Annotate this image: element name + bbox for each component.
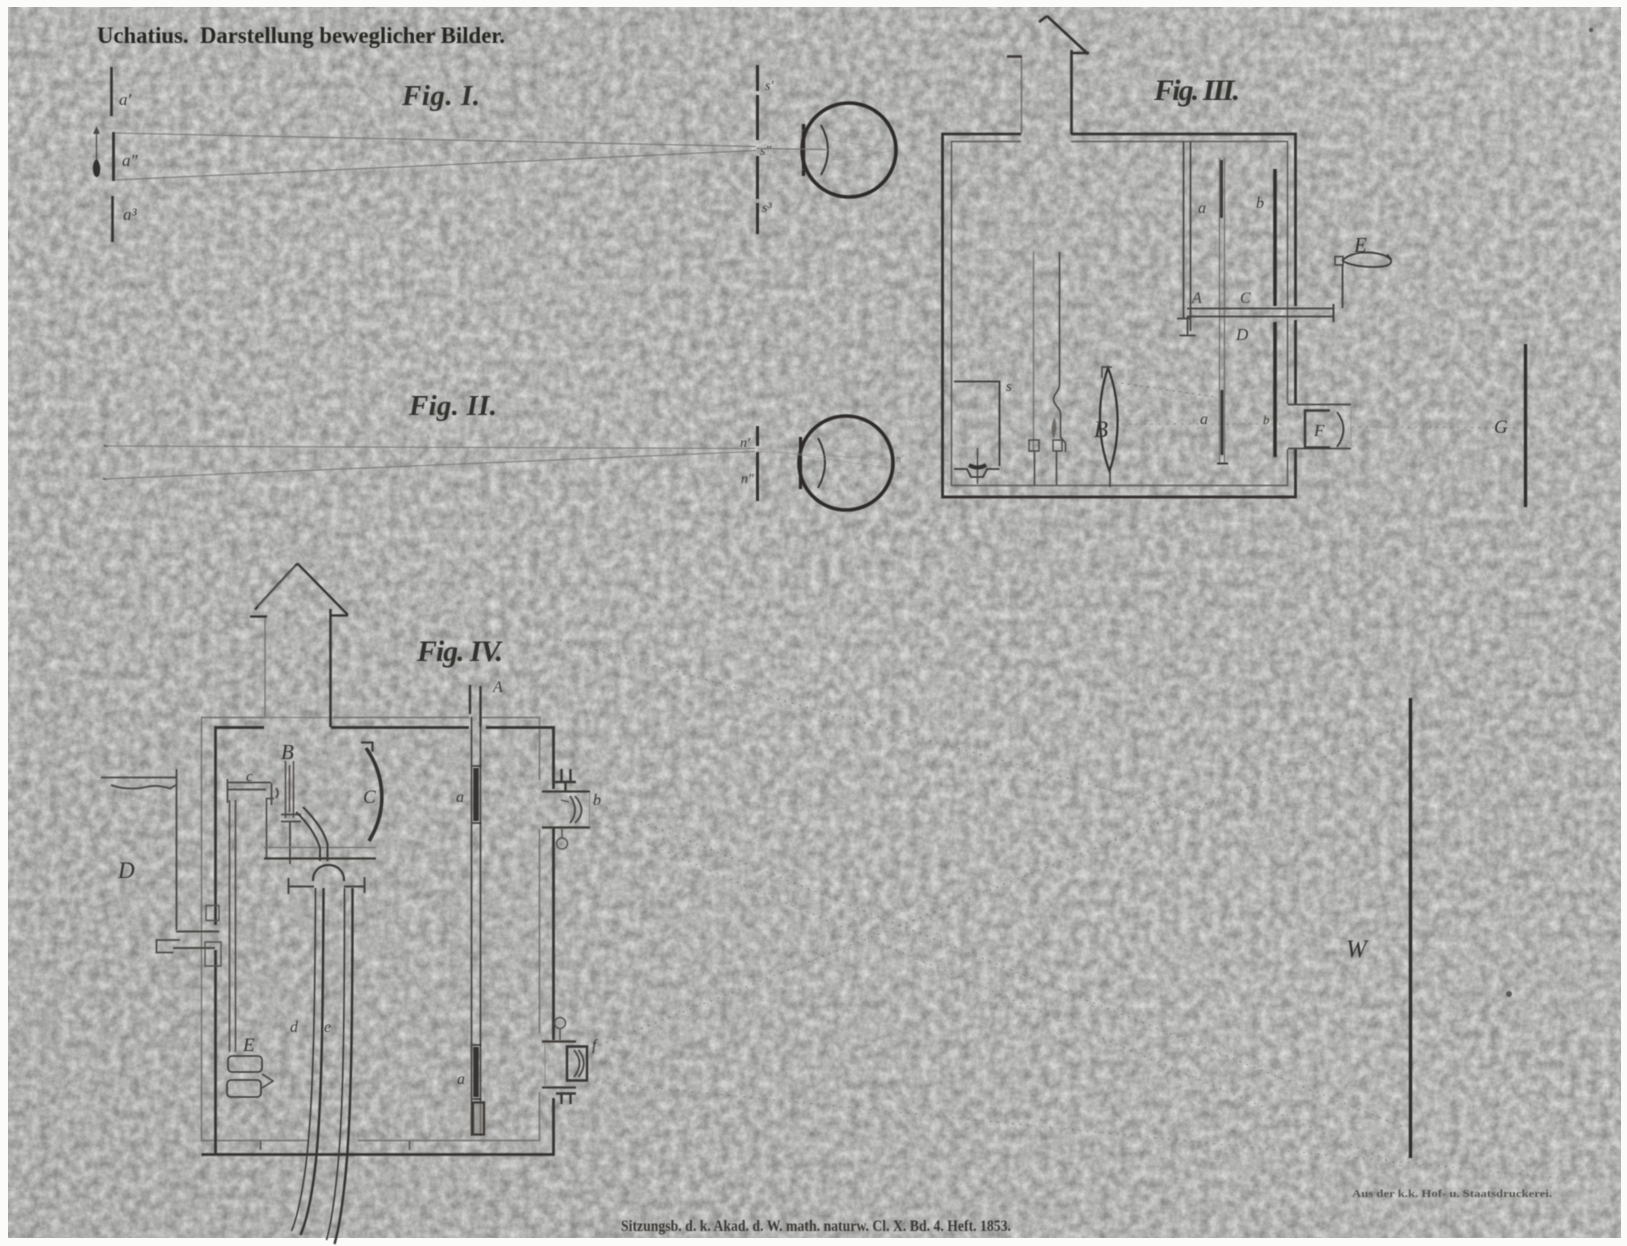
svg-text:Fig. I.: Fig. I.	[401, 80, 480, 112]
svg-text:Sitzungsb. d. k. Akad. d. W. m: Sitzungsb. d. k. Akad. d. W. math. natur…	[621, 1218, 1011, 1235]
svg-text:b: b	[593, 792, 601, 809]
svg-text:Uchatius. Darstellung bewegli: Uchatius. Darstellung beweglicher Bilder…	[97, 23, 505, 48]
svg-text:n′: n′	[896, 454, 904, 465]
svg-text:Fig. IV.: Fig. IV.	[416, 635, 503, 668]
svg-text:D: D	[1235, 325, 1249, 344]
svg-text:a: a	[1200, 411, 1208, 428]
svg-text:E: E	[242, 1035, 255, 1056]
svg-text:c: c	[246, 769, 253, 785]
svg-text:s³: s³	[762, 201, 772, 216]
svg-text:a″: a″	[122, 151, 139, 170]
svg-text:a: a	[457, 1071, 465, 1088]
svg-text:W: W	[1346, 936, 1369, 963]
svg-text:b: b	[1263, 412, 1270, 427]
svg-text:G: G	[1494, 417, 1508, 438]
svg-text:Fig. II.: Fig. II.	[408, 390, 497, 422]
svg-text:C: C	[363, 787, 376, 808]
svg-text:A: A	[1191, 290, 1202, 307]
svg-text:C: C	[1240, 290, 1251, 307]
svg-text:A: A	[492, 679, 503, 696]
svg-text:B: B	[281, 740, 294, 764]
svg-text:n″: n″	[741, 472, 754, 487]
svg-text:n′: n′	[740, 436, 751, 451]
svg-text:e: e	[324, 1019, 331, 1036]
svg-text:E: E	[1353, 233, 1367, 257]
svg-text:Aus der k.k. Hof- u. Staatsdru: Aus der k.k. Hof- u. Staatsdruckerei.	[1352, 1188, 1552, 1200]
svg-text:a: a	[1198, 200, 1206, 217]
svg-text:s′: s′	[765, 79, 774, 94]
svg-text:n: n	[897, 469, 902, 480]
svg-text:a³: a³	[123, 205, 138, 224]
svg-text:s: s	[1006, 379, 1012, 395]
svg-text:F: F	[1313, 421, 1325, 440]
svg-text:d: d	[290, 1019, 299, 1036]
svg-text:D: D	[117, 858, 135, 883]
svg-text:a′: a′	[119, 90, 132, 109]
svg-text:b: b	[1256, 195, 1264, 212]
svg-text:a: a	[456, 789, 464, 806]
svg-text:B: B	[1094, 417, 1108, 442]
svg-text:Fig. III.: Fig. III.	[1153, 74, 1240, 107]
